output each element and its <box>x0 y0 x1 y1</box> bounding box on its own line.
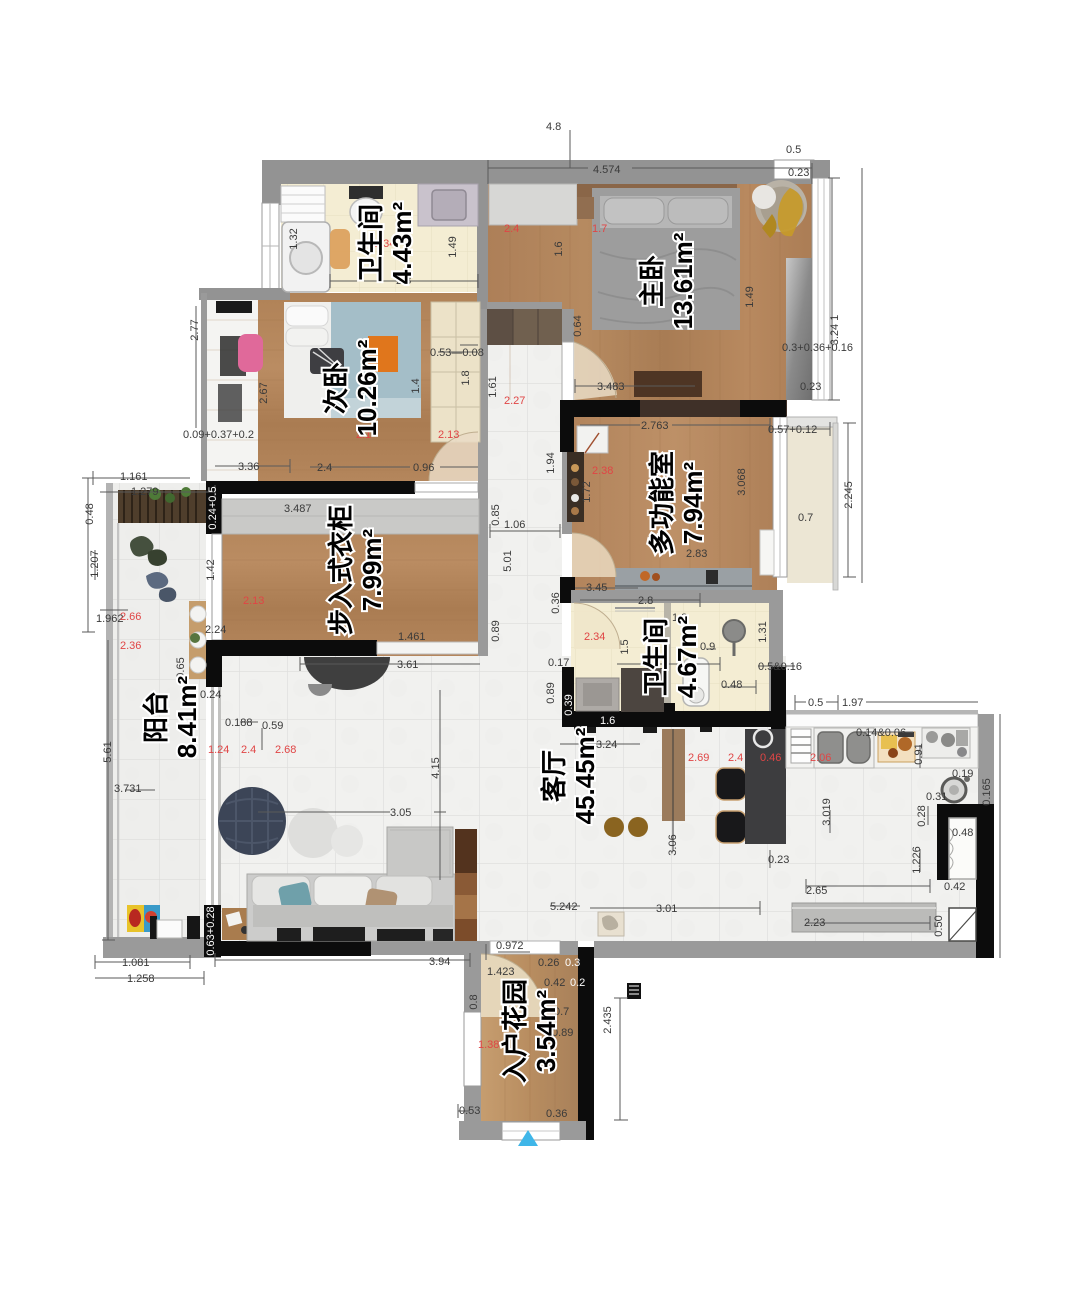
svg-text:1.72: 1.72 <box>581 481 593 502</box>
svg-text:0.2: 0.2 <box>570 977 585 989</box>
svg-text:3.06: 3.06 <box>667 834 679 855</box>
svg-text:0.89: 0.89 <box>545 682 557 703</box>
svg-text:0.28: 0.28 <box>916 805 928 826</box>
svg-text:0.85: 0.85 <box>490 504 502 525</box>
svg-text:3.54m²: 3.54m² <box>531 989 561 1072</box>
svg-text:1.8: 1.8 <box>460 370 472 385</box>
svg-text:3.01: 3.01 <box>656 903 677 915</box>
svg-text:0.8: 0.8 <box>468 994 480 1009</box>
svg-text:1.423: 1.423 <box>487 966 515 978</box>
svg-text:1.7: 1.7 <box>592 223 607 235</box>
svg-text:0.19: 0.19 <box>952 768 973 780</box>
svg-text:2.13: 2.13 <box>243 595 264 607</box>
svg-text:13.61m²: 13.61m² <box>668 232 698 329</box>
svg-text:0.46: 0.46 <box>760 752 781 764</box>
svg-text:1.226: 1.226 <box>911 846 923 874</box>
svg-text:7.99m²: 7.99m² <box>357 528 387 611</box>
svg-text:0.188: 0.188 <box>225 717 253 729</box>
svg-text:0.31: 0.31 <box>926 791 947 803</box>
svg-text:0.3+0.36+0.16: 0.3+0.36+0.16 <box>782 342 853 354</box>
svg-text:0.91: 0.91 <box>913 743 925 764</box>
svg-text:1.49: 1.49 <box>744 286 756 307</box>
svg-text:步入式衣柜: 步入式衣柜 <box>326 505 356 635</box>
svg-text:卫生间: 卫生间 <box>356 204 386 282</box>
svg-text:1.258: 1.258 <box>127 973 155 985</box>
svg-text:2.23: 2.23 <box>804 917 825 929</box>
svg-text:2.69: 2.69 <box>688 752 709 764</box>
svg-text:45.45m²: 45.45m² <box>570 727 600 824</box>
svg-text:3.068: 3.068 <box>736 468 748 496</box>
svg-text:4.15: 4.15 <box>430 757 442 778</box>
svg-text:10.26m²: 10.26m² <box>352 339 382 436</box>
svg-text:0.48: 0.48 <box>84 503 96 524</box>
svg-text:4.43m²: 4.43m² <box>387 201 417 284</box>
svg-text:3.487: 3.487 <box>284 503 312 515</box>
svg-text:客厅: 客厅 <box>539 750 569 802</box>
svg-text:0.09+0.37+0.2: 0.09+0.37+0.2 <box>183 429 254 441</box>
svg-text:0.63+0.28: 0.63+0.28 <box>205 906 217 955</box>
svg-text:0.23: 0.23 <box>768 854 789 866</box>
svg-text:0.59: 0.59 <box>262 720 283 732</box>
svg-text:1.49: 1.49 <box>447 236 459 257</box>
svg-text:3.45: 3.45 <box>586 582 607 594</box>
svg-text:0.42: 0.42 <box>944 881 965 893</box>
svg-text:8.41m²: 8.41m² <box>172 675 202 758</box>
svg-text:2.77: 2.77 <box>189 319 201 340</box>
svg-text:3.731: 3.731 <box>114 783 142 795</box>
svg-text:3.36: 3.36 <box>238 461 259 473</box>
svg-text:5.61: 5.61 <box>102 741 114 762</box>
svg-text:0.26: 0.26 <box>538 957 559 969</box>
svg-text:0.53: 0.53 <box>459 1105 480 1117</box>
svg-text:主卧: 主卧 <box>637 255 667 307</box>
svg-text:2.245: 2.245 <box>843 481 855 509</box>
svg-text:2.36: 2.36 <box>120 640 141 652</box>
svg-text:0.50: 0.50 <box>933 915 945 936</box>
svg-text:2.4: 2.4 <box>504 223 519 235</box>
svg-text:1.5: 1.5 <box>619 639 631 654</box>
svg-text:2.435: 2.435 <box>602 1006 614 1034</box>
svg-text:2.68: 2.68 <box>275 744 296 756</box>
svg-text:多功能室: 多功能室 <box>647 451 677 555</box>
svg-text:0.5: 0.5 <box>808 697 823 709</box>
svg-text:1.42: 1.42 <box>205 559 217 580</box>
svg-text:3.61: 3.61 <box>397 659 418 671</box>
svg-text:1.06: 1.06 <box>504 519 525 531</box>
svg-text:5.242: 5.242 <box>550 901 578 913</box>
svg-text:0.48: 0.48 <box>952 827 973 839</box>
svg-text:0.14&0.06: 0.14&0.06 <box>856 727 906 739</box>
svg-text:0.972: 0.972 <box>496 940 524 952</box>
svg-text:0.24: 0.24 <box>200 689 221 701</box>
svg-text:0.39: 0.39 <box>563 694 575 715</box>
svg-text:3.483: 3.483 <box>597 381 625 393</box>
svg-text:7.94m²: 7.94m² <box>678 461 708 544</box>
svg-text:0.57+0.12: 0.57+0.12 <box>768 424 817 436</box>
svg-text:2.763: 2.763 <box>641 420 669 432</box>
svg-text:1.4: 1.4 <box>410 378 422 393</box>
svg-text:0.5: 0.5 <box>786 144 801 156</box>
svg-text:2.27: 2.27 <box>504 395 525 407</box>
svg-text:0.64: 0.64 <box>572 315 584 336</box>
svg-text:0.89: 0.89 <box>490 620 502 641</box>
svg-text:0.42: 0.42 <box>544 977 565 989</box>
svg-text:0.36: 0.36 <box>546 1108 567 1120</box>
svg-text:1.081: 1.081 <box>122 957 150 969</box>
svg-text:1.31: 1.31 <box>757 621 769 642</box>
svg-text:1.161: 1.161 <box>120 471 148 483</box>
svg-text:1.6: 1.6 <box>600 715 615 727</box>
svg-text:0.53—0.08: 0.53—0.08 <box>430 347 484 359</box>
svg-text:1.97: 1.97 <box>842 697 863 709</box>
svg-text:0.9: 0.9 <box>700 641 715 653</box>
svg-text:0.96: 0.96 <box>413 462 434 474</box>
svg-text:0.65: 0.65 <box>175 657 187 678</box>
svg-text:1.461: 1.461 <box>398 631 426 643</box>
svg-text:1.38: 1.38 <box>478 1039 499 1051</box>
svg-text:阳台: 阳台 <box>141 691 171 743</box>
svg-text:1.61: 1.61 <box>487 376 499 397</box>
svg-text:1.207: 1.207 <box>89 550 101 578</box>
svg-text:2.38: 2.38 <box>592 465 613 477</box>
svg-text:4.67m²: 4.67m² <box>672 615 702 698</box>
svg-text:2.24: 2.24 <box>205 624 226 636</box>
svg-text:1.24: 1.24 <box>208 744 229 756</box>
svg-text:入户花园: 入户花园 <box>500 979 530 1083</box>
svg-text:2.34: 2.34 <box>584 631 605 643</box>
svg-text:1.32: 1.32 <box>288 228 300 249</box>
svg-text:0.7: 0.7 <box>798 512 813 524</box>
svg-text:3.019: 3.019 <box>821 798 833 826</box>
svg-text:2.4: 2.4 <box>728 752 743 764</box>
svg-text:1.279: 1.279 <box>131 486 159 498</box>
svg-text:3.05: 3.05 <box>390 807 411 819</box>
svg-text:1.94: 1.94 <box>545 452 557 473</box>
svg-text:3.94: 3.94 <box>429 956 450 968</box>
svg-text:4.8: 4.8 <box>546 121 561 133</box>
svg-text:0.24+0.5: 0.24+0.5 <box>207 486 219 529</box>
svg-text:次卧: 次卧 <box>321 362 351 414</box>
svg-text:2.83: 2.83 <box>686 548 707 560</box>
svg-text:0.36: 0.36 <box>550 592 562 613</box>
svg-text:0.17: 0.17 <box>548 657 569 669</box>
svg-text:2.13: 2.13 <box>438 429 459 441</box>
svg-text:0.5&0.16: 0.5&0.16 <box>758 661 802 673</box>
svg-text:0.3: 0.3 <box>565 957 580 969</box>
svg-text:2.65: 2.65 <box>806 885 827 897</box>
svg-text:0.23: 0.23 <box>800 381 821 393</box>
svg-text:2.67: 2.67 <box>258 382 270 403</box>
svg-text:2.4: 2.4 <box>241 744 256 756</box>
svg-text:3.24 1: 3.24 1 <box>829 315 841 346</box>
svg-text:5.01: 5.01 <box>502 550 514 571</box>
svg-text:1.6: 1.6 <box>553 241 565 256</box>
svg-text:2.8: 2.8 <box>638 595 653 607</box>
svg-text:2.06: 2.06 <box>810 752 831 764</box>
svg-text:2.66: 2.66 <box>120 611 141 623</box>
svg-text:卫生间: 卫生间 <box>641 618 671 696</box>
svg-text:0.48: 0.48 <box>721 679 742 691</box>
svg-text:2.4: 2.4 <box>317 462 332 474</box>
svg-text:4.574: 4.574 <box>593 164 621 176</box>
svg-text:0.23: 0.23 <box>788 167 809 179</box>
svg-text:0.165: 0.165 <box>981 778 993 806</box>
